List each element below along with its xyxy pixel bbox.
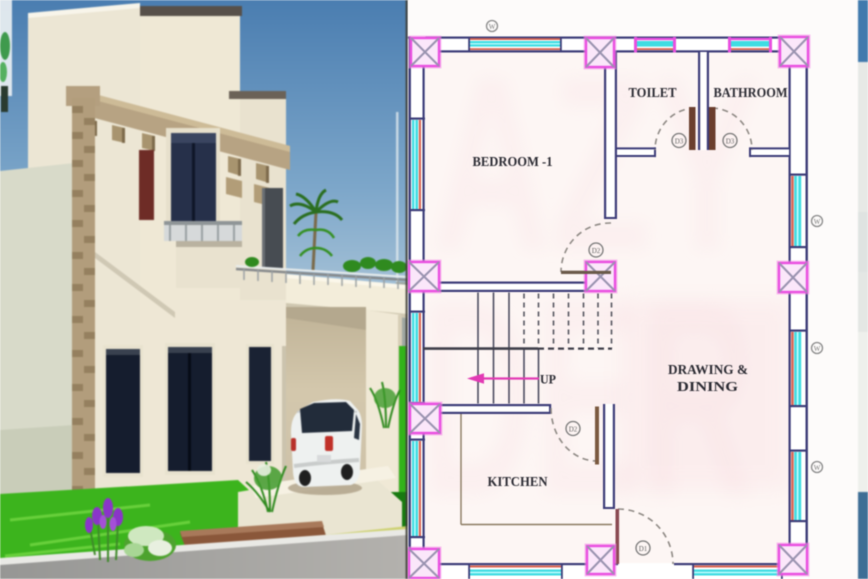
svg-text:D2: D2 xyxy=(569,426,578,434)
svg-text:W: W xyxy=(489,23,496,31)
svg-text:TOILET: TOILET xyxy=(629,86,678,101)
svg-text:BATHROOM: BATHROOM xyxy=(714,86,788,101)
svg-text:DRAWING &: DRAWING & xyxy=(668,363,748,378)
svg-text:D3: D3 xyxy=(675,138,684,146)
svg-text:W: W xyxy=(814,345,821,353)
svg-text:UP: UP xyxy=(540,373,556,387)
svg-text:W: W xyxy=(814,464,821,472)
svg-text:W: W xyxy=(814,218,821,226)
svg-text:D3: D3 xyxy=(726,138,735,146)
svg-text:BEDROOM -1: BEDROOM -1 xyxy=(473,155,553,170)
svg-text:D2: D2 xyxy=(592,247,601,255)
svg-text:KITCHEN: KITCHEN xyxy=(488,475,548,490)
svg-text:DINING: DINING xyxy=(677,380,738,395)
svg-text:D1: D1 xyxy=(639,545,648,553)
